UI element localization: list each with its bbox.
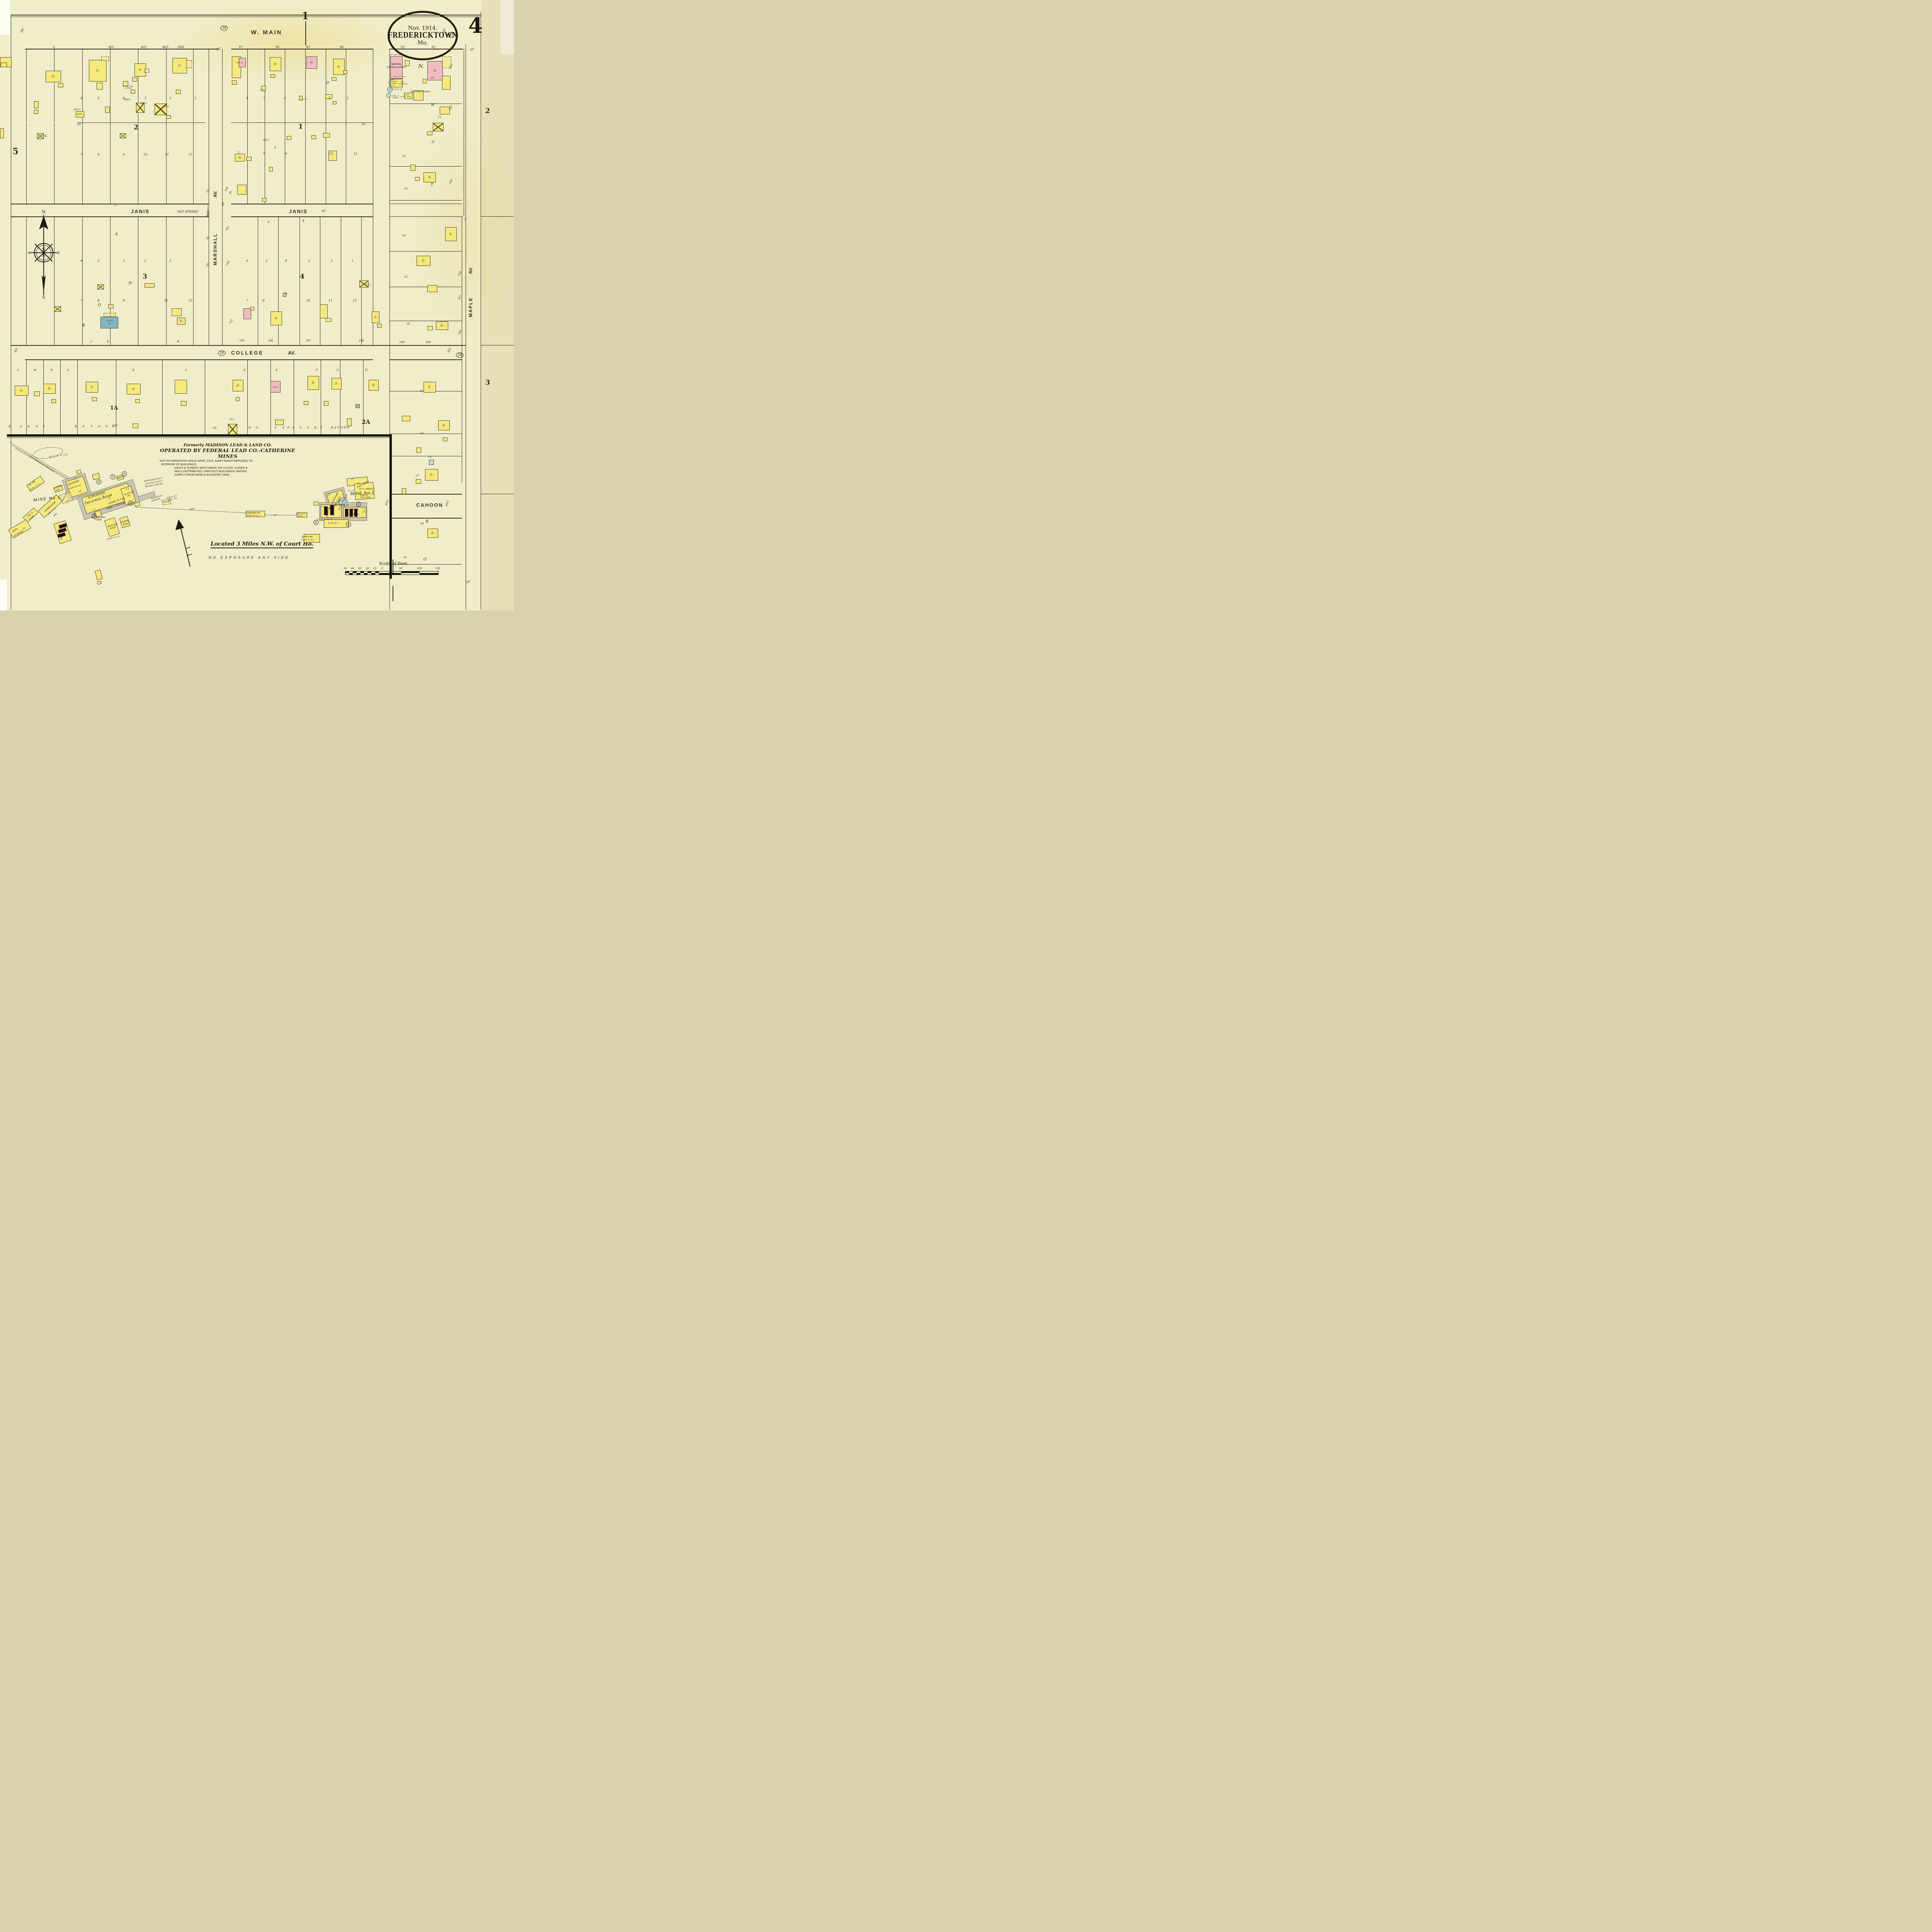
grid-line bbox=[60, 359, 61, 434]
map-label: IMPERIAL bbox=[391, 63, 402, 66]
dwelling-label: D. bbox=[439, 421, 449, 430]
dwelling-label: D. bbox=[235, 154, 245, 161]
map-label: 1 bbox=[347, 97, 349, 100]
map-label: S bbox=[229, 191, 231, 195]
map-label: 2A bbox=[362, 418, 370, 425]
paper-tear bbox=[0, 580, 7, 611]
map-label: 20' bbox=[362, 123, 366, 126]
map-label: 198 bbox=[359, 339, 364, 342]
map-label: BOTTLING WORKS bbox=[411, 91, 430, 93]
map-label: L bbox=[17, 369, 19, 372]
map-label: ENG. B' bbox=[389, 85, 395, 87]
grid-line bbox=[166, 123, 167, 204]
building bbox=[135, 399, 140, 403]
map-label: 4 bbox=[346, 522, 351, 527]
map-label: 20' bbox=[362, 511, 366, 513]
scale-tick: 50 bbox=[344, 567, 347, 570]
map-label: (IRON) bbox=[297, 515, 303, 517]
map-label: 10 bbox=[306, 299, 310, 303]
grid-line bbox=[305, 21, 306, 45]
map-label: 402½ bbox=[124, 99, 131, 101]
map-label: 11 bbox=[164, 299, 168, 303]
grid-line bbox=[326, 49, 326, 122]
map-label: (CORR. IR. CL.) bbox=[345, 513, 359, 515]
grid-line bbox=[82, 123, 83, 204]
dwelling-label: D. bbox=[428, 61, 442, 80]
map-label: 90 bbox=[206, 236, 210, 240]
map-label: 13 bbox=[404, 187, 408, 190]
map-label: 7 bbox=[237, 151, 239, 155]
street-label-cahoon: CAHOON bbox=[416, 502, 443, 508]
map-label: 15 bbox=[420, 389, 423, 393]
map-label: O bbox=[423, 558, 427, 562]
grid-line bbox=[346, 49, 346, 122]
map-label: S bbox=[300, 426, 302, 429]
building bbox=[410, 165, 415, 171]
map-label: 404 bbox=[178, 46, 184, 49]
map-state: Mo. bbox=[418, 40, 428, 46]
building bbox=[270, 74, 275, 78]
map-label: 4 bbox=[284, 97, 286, 100]
incline-arrow-icon bbox=[172, 519, 197, 569]
building bbox=[34, 101, 39, 108]
map-label: N bbox=[344, 426, 346, 429]
building bbox=[243, 308, 251, 319]
building bbox=[237, 185, 247, 195]
dwelling-label: D. bbox=[369, 380, 378, 390]
map-label: 7 bbox=[80, 153, 82, 156]
dwelling-label: D. bbox=[307, 57, 317, 68]
map-label: 1-2 bbox=[321, 506, 325, 508]
dwelling-label: D. bbox=[446, 228, 456, 241]
map-label: 8 bbox=[97, 299, 99, 303]
street-label-college: COLLEGE bbox=[231, 350, 264, 356]
street-label-av-: AV. bbox=[288, 350, 296, 356]
grid-line bbox=[389, 494, 462, 495]
mine-note-line: NIGHT & SUNDAY WATCHMAN:-NO CLOCK.-CASKS… bbox=[174, 466, 296, 469]
map-label: D bbox=[347, 426, 349, 429]
map-label: 38 bbox=[220, 26, 228, 31]
map-label: 93 bbox=[401, 46, 405, 49]
building-d: D. bbox=[177, 318, 185, 325]
grid-line bbox=[54, 49, 54, 122]
map-label: 16 bbox=[406, 322, 410, 325]
svg-text:S: S bbox=[42, 247, 46, 253]
grid-line bbox=[11, 345, 466, 346]
building bbox=[101, 56, 109, 61]
grid-line bbox=[389, 321, 462, 321]
map-label: 18 bbox=[420, 522, 424, 525]
map-label: IR. CHS. 50' AB. RF. bbox=[331, 504, 349, 507]
grid-line bbox=[209, 49, 209, 345]
map-label: 8 bbox=[263, 151, 265, 155]
dwelling-label: D. bbox=[424, 173, 435, 182]
dwelling-label: D. bbox=[177, 318, 185, 324]
map-label: 4 bbox=[300, 273, 304, 281]
map-label: 8 bbox=[262, 299, 264, 303]
map-label: 95 bbox=[306, 46, 310, 49]
grid-line bbox=[54, 216, 54, 345]
building bbox=[166, 115, 171, 119]
building bbox=[355, 404, 360, 408]
grid-line bbox=[110, 49, 111, 122]
building bbox=[250, 307, 254, 310]
grid-line bbox=[11, 17, 481, 17]
building bbox=[333, 101, 337, 104]
map-label: 101 bbox=[228, 318, 234, 325]
grid-line bbox=[116, 359, 116, 434]
building bbox=[416, 479, 421, 484]
building-d: D. bbox=[436, 321, 448, 330]
building-d: D. bbox=[369, 380, 379, 391]
map-label: E bbox=[82, 425, 84, 428]
map-label: 0 bbox=[110, 474, 115, 480]
grid-line bbox=[11, 15, 11, 610]
map-label: 320 bbox=[448, 179, 454, 185]
building bbox=[275, 420, 284, 425]
mine-note-line: NOT IN OPERATION SINCE APRIL 1914. ADMIT… bbox=[160, 459, 296, 463]
map-label: O bbox=[432, 140, 434, 144]
map-label: B bbox=[132, 369, 134, 372]
map-label: A bbox=[20, 425, 22, 428]
building bbox=[262, 198, 267, 202]
map-label: 6 bbox=[246, 97, 248, 100]
building bbox=[314, 502, 318, 505]
grid-line bbox=[373, 49, 373, 345]
dwelling-label: D. bbox=[46, 71, 61, 82]
grid-line bbox=[341, 216, 341, 345]
building bbox=[417, 447, 421, 453]
map-label: (CORR. IR. CL.) bbox=[247, 515, 260, 517]
building bbox=[95, 570, 102, 580]
grid-line bbox=[265, 49, 265, 122]
building-d: D. bbox=[427, 61, 443, 80]
building bbox=[247, 157, 252, 161]
map-label: 125' bbox=[273, 514, 277, 517]
dwelling-label: D. bbox=[436, 322, 448, 330]
dwelling-label: D. bbox=[417, 256, 430, 265]
compass-north: N bbox=[42, 209, 46, 214]
map-label: Y bbox=[338, 426, 340, 429]
building bbox=[228, 424, 237, 435]
grid-line bbox=[389, 359, 462, 360]
map-label: 6 bbox=[80, 259, 82, 263]
building bbox=[324, 401, 328, 406]
grid-line bbox=[294, 359, 294, 434]
dwelling-label: D. bbox=[44, 384, 55, 393]
grid-line bbox=[393, 586, 393, 601]
grid-line bbox=[26, 216, 27, 345]
building bbox=[100, 317, 118, 328]
map-label: N bbox=[129, 281, 132, 286]
building bbox=[105, 107, 110, 113]
map-label: W.T. ELEV'D. 10' bbox=[389, 88, 402, 90]
grid-line bbox=[389, 287, 462, 287]
grid-line bbox=[340, 359, 340, 434]
street-label-marshall: MARSHALL bbox=[213, 233, 218, 265]
building bbox=[269, 167, 273, 172]
mine-note-line: INTERIOR OF BUILDINGS. bbox=[161, 463, 296, 466]
map-label: N bbox=[248, 426, 251, 429]
map-label: 12 bbox=[189, 153, 192, 156]
compass-west: W bbox=[28, 251, 31, 255]
building bbox=[104, 313, 116, 316]
map-label: 2 bbox=[169, 97, 171, 100]
dwelling-label: D. bbox=[173, 58, 187, 73]
grid-line bbox=[247, 359, 248, 434]
building-d: D. bbox=[427, 529, 438, 538]
building bbox=[427, 131, 432, 135]
street-label-janis: JANIS bbox=[131, 209, 150, 214]
grid-line bbox=[320, 216, 320, 345]
map-label: 4 bbox=[285, 259, 287, 263]
building bbox=[343, 70, 347, 74]
map-label: 49½' bbox=[445, 499, 450, 507]
map-label: 402 bbox=[141, 46, 146, 49]
map-label: 97 bbox=[239, 46, 243, 49]
map-label: 1 bbox=[298, 123, 303, 131]
map-label: D. bbox=[109, 323, 111, 325]
compass-east: E bbox=[57, 251, 60, 255]
grid-line bbox=[466, 44, 466, 610]
map-label: O bbox=[292, 426, 294, 429]
building-d: D. bbox=[15, 386, 29, 396]
building-d: D. bbox=[270, 311, 282, 325]
street-label-w-main: W. MAIN bbox=[251, 29, 282, 36]
dwelling-label: D. bbox=[333, 59, 344, 75]
map-label: B bbox=[302, 219, 304, 223]
map-label: NOT USED bbox=[361, 497, 371, 499]
map-label: SUPPLY RM. bbox=[301, 536, 313, 538]
building-d: D. bbox=[417, 256, 430, 266]
building-d: D. bbox=[172, 58, 187, 73]
sanborn-map-sheet: Nov. 1914. FREDERICKTOWN Mo. 4 S M N S W… bbox=[0, 0, 514, 611]
building bbox=[176, 90, 181, 94]
street-label-av-: AV. bbox=[468, 267, 473, 274]
map-label: B bbox=[9, 425, 10, 428]
building bbox=[186, 60, 192, 68]
map-label: W.T. bbox=[340, 500, 344, 502]
building-d: D. bbox=[127, 384, 141, 395]
building bbox=[97, 83, 103, 90]
map-label: 40' bbox=[221, 202, 225, 207]
building bbox=[8, 519, 31, 539]
map-label: B bbox=[75, 425, 77, 428]
map-label: 63' bbox=[14, 347, 19, 353]
map-label: R. bbox=[177, 340, 180, 343]
map-label: 1 bbox=[351, 259, 353, 263]
scale-title: Scale of Feet. bbox=[345, 561, 442, 566]
map-label: F bbox=[316, 369, 318, 372]
map-label: 20' bbox=[77, 123, 82, 126]
grid-line bbox=[481, 216, 514, 217]
grid-line bbox=[389, 200, 462, 201]
map-label: 2 bbox=[485, 107, 490, 115]
map-label: R bbox=[425, 520, 429, 524]
map-label: 11 bbox=[438, 116, 442, 119]
grid-line bbox=[247, 123, 248, 204]
map-label: 3 bbox=[122, 259, 124, 263]
map-label: 403 bbox=[162, 46, 168, 49]
building-d: D. bbox=[372, 311, 379, 323]
map-label: 5 bbox=[97, 97, 99, 100]
map-label: B bbox=[331, 426, 333, 429]
grid-line bbox=[26, 49, 27, 122]
grid-line bbox=[231, 204, 373, 204]
map-label: 68' bbox=[20, 27, 25, 33]
map-label: 1 bbox=[169, 259, 171, 263]
map-label: 12' bbox=[464, 217, 468, 221]
grid-line bbox=[43, 359, 44, 434]
map-label: 5 bbox=[263, 97, 265, 100]
map-label: 7 bbox=[246, 299, 248, 303]
dwelling-label: D. bbox=[332, 378, 341, 389]
dwelling-label: D. bbox=[428, 529, 438, 537]
grid-line bbox=[305, 123, 306, 204]
map-label: D bbox=[243, 369, 246, 372]
grid-line bbox=[305, 49, 306, 122]
map-label: 402½ bbox=[140, 102, 147, 105]
building bbox=[377, 324, 382, 328]
building bbox=[402, 416, 410, 421]
scale-tick: 40 bbox=[351, 567, 354, 570]
mine-note-line: Formerly MADISON LEAD & LAND CO. bbox=[160, 443, 296, 447]
map-label: A bbox=[274, 146, 276, 149]
scale-tick: 30 bbox=[358, 567, 361, 570]
grid-line bbox=[389, 104, 462, 104]
map-label: AUTO bbox=[77, 113, 82, 116]
grid-line bbox=[258, 216, 258, 345]
building bbox=[92, 397, 97, 401]
map-label: 14 bbox=[402, 234, 406, 237]
grid-line bbox=[193, 216, 194, 345]
map-label: Y bbox=[91, 425, 93, 428]
building bbox=[311, 135, 316, 139]
building bbox=[181, 401, 187, 406]
building bbox=[172, 308, 182, 316]
grid-line bbox=[26, 123, 27, 204]
building bbox=[402, 488, 406, 494]
map-label: 195 bbox=[239, 339, 244, 342]
scale-tick: 0 bbox=[381, 567, 383, 570]
map-label: 96 bbox=[276, 46, 279, 49]
map-label: CHANGING RM. bbox=[246, 512, 260, 514]
map-label: 104 bbox=[224, 186, 229, 192]
map-label: 94 bbox=[340, 46, 344, 49]
grid-line bbox=[389, 166, 462, 167]
building bbox=[133, 423, 138, 428]
building bbox=[440, 107, 450, 114]
map-label: 12 bbox=[402, 155, 406, 158]
map-label: S bbox=[43, 425, 45, 428]
map-label: BR. CH. 5' AB. RF. bbox=[393, 76, 406, 78]
grid-line bbox=[389, 434, 462, 434]
map-label: 11 bbox=[328, 299, 332, 303]
building bbox=[236, 397, 240, 401]
map-label: 6 bbox=[313, 520, 318, 525]
map-label: 199 bbox=[399, 341, 404, 344]
building-d: D. bbox=[46, 71, 61, 82]
compass-south: S bbox=[42, 295, 45, 299]
map-label: 50' bbox=[213, 427, 217, 430]
map-label: 11 bbox=[165, 153, 169, 156]
map-label: R bbox=[82, 324, 85, 328]
map-label: (C.B.) bbox=[107, 320, 113, 322]
map-label: 6 bbox=[246, 259, 248, 263]
map-label: 92 bbox=[206, 189, 210, 193]
building bbox=[326, 318, 332, 322]
grid-line bbox=[26, 359, 27, 434]
building bbox=[323, 133, 330, 138]
grid-line bbox=[464, 49, 464, 216]
street-label-janis: JANIS bbox=[289, 209, 308, 214]
building bbox=[54, 306, 61, 312]
map-label: OR. 1ST bbox=[347, 490, 354, 492]
map-label: D bbox=[112, 425, 114, 428]
map-label: O bbox=[67, 369, 69, 372]
building-d: D. bbox=[438, 420, 450, 430]
map-label: 3 bbox=[308, 259, 310, 263]
map-label: 10 bbox=[143, 153, 147, 156]
scale-tick: 10 bbox=[373, 567, 376, 570]
grid-line bbox=[481, 494, 514, 494]
map-label: 11 bbox=[329, 152, 333, 156]
well-icon bbox=[386, 93, 391, 98]
map-label: K. bbox=[107, 340, 109, 343]
dashed-line bbox=[265, 515, 296, 515]
grid-line bbox=[346, 123, 346, 204]
building bbox=[175, 380, 187, 394]
grid-line bbox=[222, 49, 223, 345]
map-label: 7 bbox=[80, 299, 82, 303]
map-label: OUT B. bbox=[260, 89, 265, 91]
grid-line bbox=[393, 560, 393, 573]
map-label: 4 bbox=[122, 97, 124, 100]
dwelling-label: D. bbox=[127, 384, 140, 394]
map-label: 19 bbox=[403, 556, 407, 559]
map-label: PUMP bbox=[393, 97, 398, 99]
building bbox=[443, 437, 447, 441]
map-label: U bbox=[307, 426, 310, 429]
building bbox=[76, 469, 82, 474]
dwelling-label: D. bbox=[308, 376, 319, 389]
building bbox=[120, 133, 126, 138]
dwelling-label: D. bbox=[424, 382, 435, 392]
building bbox=[332, 77, 337, 81]
building bbox=[320, 304, 328, 318]
grid-line bbox=[205, 359, 205, 434]
map-label: 50' bbox=[469, 47, 475, 52]
map-label: 5 bbox=[12, 146, 18, 156]
building bbox=[37, 133, 44, 139]
building bbox=[97, 581, 102, 585]
map-label: ROOM 1ST bbox=[399, 83, 408, 85]
map-label: 2 bbox=[144, 259, 146, 263]
grid-line bbox=[285, 49, 285, 122]
map-label: T bbox=[431, 183, 434, 187]
map-label: NOT OPENED bbox=[178, 210, 198, 214]
map-label: 12 bbox=[353, 299, 357, 303]
map-label: 460' bbox=[189, 508, 195, 511]
map-label: 2 bbox=[330, 259, 332, 263]
map-label: 0 bbox=[128, 501, 133, 506]
map-label: 9 bbox=[122, 299, 124, 303]
map-label: 1A bbox=[110, 405, 118, 411]
map-label: 63' bbox=[447, 347, 452, 353]
grid-line bbox=[231, 216, 373, 217]
map-label: H bbox=[365, 369, 367, 372]
map-label: R bbox=[314, 426, 316, 429]
